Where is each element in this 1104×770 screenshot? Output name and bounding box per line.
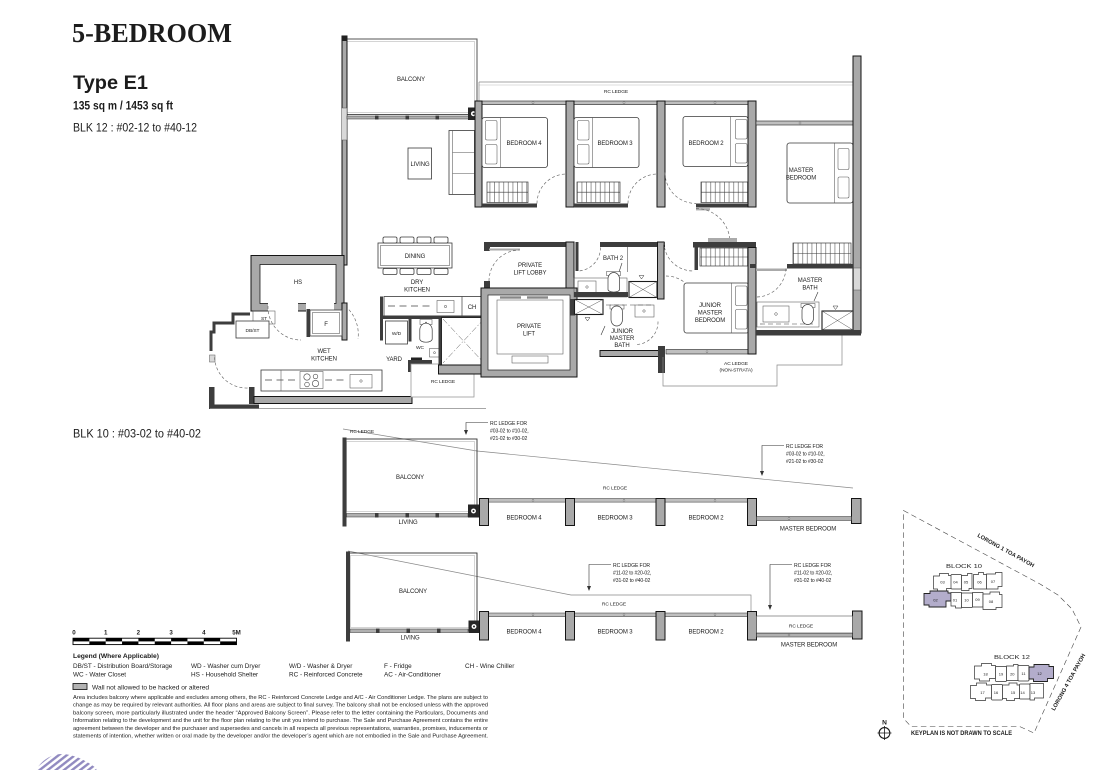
svg-text:MASTER: MASTER [789,168,814,174]
svg-text:BEDROOM 2: BEDROOM 2 [688,630,724,636]
svg-text:MASTER BEDROOM: MASTER BEDROOM [781,643,837,649]
svg-text:14: 14 [1020,690,1025,695]
svg-text:BEDROOM 3: BEDROOM 3 [597,630,633,636]
svg-text:agreement between the develope: agreement between the developer and the … [73,726,488,732]
svg-text:WD - Washer cum Dryer: WD - Washer cum Dryer [191,663,261,670]
svg-text:1: 1 [104,630,108,637]
svg-text:BEDROOM: BEDROOM [695,318,725,324]
svg-text:RC LEDGE FOR: RC LEDGE FOR [490,421,527,427]
svg-text:02: 02 [933,598,938,603]
svg-text:CH: CH [468,305,476,311]
svg-text:17: 17 [980,690,985,695]
svg-text:BEDROOM: BEDROOM [786,176,816,182]
svg-text:16: 16 [994,690,999,695]
svg-text:WC: WC [416,345,425,351]
svg-text:20: 20 [1010,672,1015,677]
svg-text:AC LEDGE: AC LEDGE [724,361,749,367]
svg-text:01: 01 [953,598,958,603]
svg-text:PRIVATE: PRIVATE [517,324,541,330]
svg-text:DB/ST: DB/ST [246,328,260,334]
svg-text:KEYPLAN IS NOT DRAWN TO SCALE: KEYPLAN IS NOT DRAWN TO SCALE [911,730,1013,737]
svg-text:LIVING: LIVING [400,636,420,642]
svg-text:RC LEDGE: RC LEDGE [431,379,456,385]
svg-text:Type E1: Type E1 [73,72,148,94]
svg-text:BATH: BATH [614,343,629,349]
svg-text:AC - Air-Conditioner: AC - Air-Conditioner [384,671,442,678]
svg-text:RC LEDGE: RC LEDGE [604,89,629,95]
svg-text:BATH: BATH [802,286,817,292]
svg-text:BEDROOM 2: BEDROOM 2 [688,141,724,147]
svg-text:RC LEDGE FOR: RC LEDGE FOR [794,563,831,569]
svg-text:BALCONY: BALCONY [396,475,424,481]
svg-text:04: 04 [953,580,958,585]
svg-text:HS: HS [294,280,302,286]
svg-text:135 sq m / 1453 sq ft: 135 sq m / 1453 sq ft [73,99,173,113]
svg-text:5M: 5M [232,630,241,637]
svg-text:BEDROOM 2: BEDROOM 2 [688,516,724,522]
svg-text:N: N [882,720,887,727]
svg-text:BATH 2: BATH 2 [603,256,624,262]
svg-text:BLOCK 10: BLOCK 10 [946,564,982,570]
svg-text:03: 03 [940,580,945,585]
svg-text:Wall not allowed to be hacked: Wall not allowed to be hacked or altered [92,685,209,692]
svg-text:BLOCK 12: BLOCK 12 [994,655,1030,661]
svg-text:12: 12 [1037,671,1042,676]
svg-text:#21-02 to #30-02: #21-02 to #30-02 [490,436,527,442]
svg-text:Area includes balcony where ap: Area includes balcony where applicable a… [73,695,488,701]
svg-text:MASTER BEDROOM: MASTER BEDROOM [780,527,836,533]
svg-text:HS - Household Shelter: HS - Household Shelter [191,671,259,678]
svg-text:DINING: DINING [405,254,426,260]
svg-text:KITCHEN: KITCHEN [404,288,430,294]
svg-text:#31-02 to #40-02: #31-02 to #40-02 [613,578,650,584]
svg-text:balcony screen, more particula: balcony screen, more particularly illust… [73,710,488,716]
svg-text:PRIVATE: PRIVATE [518,263,542,269]
svg-text:RC LEDGE: RC LEDGE [603,486,628,492]
svg-text:change as may be required by r: change as may be required by relevant au… [73,703,488,709]
svg-text:19: 19 [999,672,1004,677]
svg-text:JUNIOR: JUNIOR [611,329,634,335]
svg-text:DRY: DRY [411,280,423,286]
svg-text:RC LEDGE FOR: RC LEDGE FOR [613,563,650,569]
svg-text:BALCONY: BALCONY [399,589,427,595]
svg-text:#31-02 to #40-02: #31-02 to #40-02 [794,578,831,584]
svg-text:LIFT LOBBY: LIFT LOBBY [514,271,547,277]
svg-text:W/D: W/D [392,331,402,337]
svg-text:2: 2 [137,630,141,637]
svg-text:#03-02 to #10-02,: #03-02 to #10-02, [490,429,529,435]
svg-text:statements of intention, wheth: statements of intention, whether written… [73,734,488,740]
svg-text:W/D - Washer & Dryer: W/D - Washer & Dryer [289,663,353,670]
svg-text:DB/ST - Distribution Board/Sto: DB/ST - Distribution Board/Storage [73,663,173,670]
svg-text:09: 09 [975,597,980,602]
svg-text:BEDROOM 4: BEDROOM 4 [506,516,542,522]
svg-text:4: 4 [202,630,206,637]
svg-text:06: 06 [977,580,982,585]
svg-text:BLK 10 : #03-02 to #40-02: BLK 10 : #03-02 to #40-02 [73,427,201,441]
svg-text:BLK 12 : #02-12 to #40-12: BLK 12 : #02-12 to #40-12 [73,121,197,135]
svg-text:0: 0 [72,630,76,637]
svg-text:RC LEDGE: RC LEDGE [789,624,814,630]
svg-text:WC - Water Closet: WC - Water Closet [73,671,126,678]
svg-text:RC LEDGE FOR: RC LEDGE FOR [786,444,823,450]
svg-text:10: 10 [964,598,969,603]
svg-text:RC LEDGE: RC LEDGE [350,429,375,435]
svg-text:3: 3 [169,630,173,637]
svg-text:13: 13 [1031,690,1036,695]
svg-text:Information relating to the de: Information relating to the development … [73,718,488,724]
svg-text:MASTER: MASTER [610,336,635,342]
svg-text:BEDROOM 3: BEDROOM 3 [597,141,633,147]
svg-text:LIVING: LIVING [410,162,430,168]
svg-text:08: 08 [989,599,994,604]
svg-text:WET: WET [317,349,330,355]
svg-text:#11-02 to #20-02,: #11-02 to #20-02, [613,571,651,577]
svg-text:LIFT: LIFT [523,332,535,338]
svg-text:5-BEDROOM: 5-BEDROOM [72,18,232,48]
svg-text:15: 15 [1011,690,1016,695]
svg-text:F - Fridge: F - Fridge [384,663,412,670]
svg-text:Legend (Where Applicable): Legend (Where Applicable) [73,653,159,660]
svg-text:MASTER: MASTER [698,311,723,317]
svg-text:KITCHEN: KITCHEN [311,357,337,363]
svg-text:07: 07 [991,579,996,584]
svg-text:RC LEDGE: RC LEDGE [602,602,627,608]
svg-text:LIVING: LIVING [398,520,418,526]
svg-text:BEDROOM 3: BEDROOM 3 [597,516,633,522]
svg-text:RC - Reinforced Concrete: RC - Reinforced Concrete [289,671,363,678]
svg-text:#21-02 to #30-02: #21-02 to #30-02 [786,459,823,465]
svg-text:CH - Wine Chiller: CH - Wine Chiller [465,663,515,670]
svg-text:#11-02 to #20-02,: #11-02 to #20-02, [794,571,832,577]
svg-text:MASTER: MASTER [798,278,823,284]
svg-text:05: 05 [964,580,969,585]
svg-text:#03-02 to #10-02,: #03-02 to #10-02, [786,452,825,458]
svg-text:18: 18 [983,672,988,677]
svg-text:BEDROOM 4: BEDROOM 4 [506,630,542,636]
svg-text:JUNIOR: JUNIOR [699,303,722,309]
svg-text:BEDROOM 4: BEDROOM 4 [506,141,542,147]
svg-text:F: F [324,322,328,328]
svg-text:YARD: YARD [386,357,403,363]
svg-text:(NON-STRATA): (NON-STRATA) [719,368,753,374]
svg-text:BALCONY: BALCONY [397,77,425,83]
